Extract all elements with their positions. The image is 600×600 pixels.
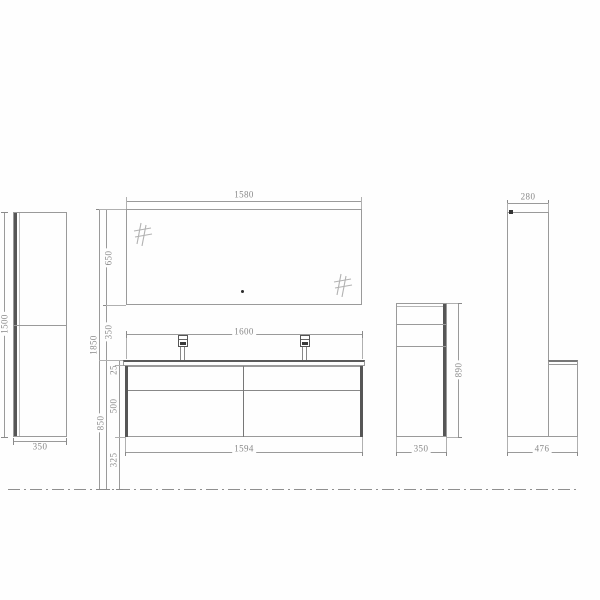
extension-line: [361, 197, 362, 209]
faucet-stem: [180, 347, 185, 360]
extension-line: [362, 338, 363, 359]
extension-line: [99, 209, 126, 210]
tick: [126, 331, 127, 338]
extension-line: [507, 437, 508, 452]
extension-line: [115, 437, 125, 438]
extension-line: [447, 303, 458, 304]
dim-mirror-gap: 350: [105, 323, 114, 342]
dim-overall-depth: 476: [533, 445, 552, 454]
faucet-stem: [302, 347, 307, 360]
dim-countertop-width: 1600: [232, 328, 256, 337]
extension-line: [115, 365, 123, 366]
dim-mirror-height: 650: [105, 249, 114, 268]
side-cabinet-drawer-line-2: [396, 346, 447, 347]
extension-line: [577, 437, 578, 452]
tall-cabinet-side-view: [507, 212, 549, 437]
vanity-left-side-panel: [125, 366, 128, 437]
dim-line-tall-cabinet-depth: [507, 203, 549, 204]
vanity-side-counter-line: [549, 364, 578, 365]
tick: [116, 489, 123, 490]
tick: [362, 331, 363, 338]
extension-line: [396, 437, 397, 452]
vanity-body: [125, 366, 363, 437]
extension-line: [125, 437, 126, 452]
tick: [96, 489, 103, 490]
extension-line: [446, 437, 447, 452]
dim-line-overall-height: [99, 209, 100, 489]
vanity-drawer-divider-horizontal: [128, 390, 360, 391]
drawing-canvas: 1500 350 1850 650 350 850 25 500 325: [0, 0, 600, 600]
tick: [1, 437, 8, 438]
dim-line-vanity-chain: [119, 360, 120, 489]
dim-vanity-body-width: 1594: [232, 445, 256, 454]
tick: [1, 212, 8, 213]
tick: [66, 438, 67, 445]
extension-line: [99, 360, 123, 361]
dim-vanity-body-height: 500: [110, 397, 119, 416]
side-cabinet-top-panel-line: [397, 306, 446, 307]
floor-centerline: [8, 489, 580, 490]
mirror-touch-sensor-dot: [241, 290, 244, 293]
dim-left-cabinet-width: 350: [31, 443, 50, 452]
vanity-drawer-divider-vertical: [243, 366, 244, 437]
mirror-sparkle-icon: [332, 271, 354, 297]
extension-line: [126, 338, 127, 359]
tall-cabinet-wall-bracket-mark: [509, 210, 513, 214]
dim-left-cabinet-height: 1500: [1, 312, 10, 336]
extension-line: [507, 203, 508, 212]
dim-mirror-width: 1580: [232, 191, 256, 200]
faucet-icon: [300, 335, 310, 347]
mirror: [126, 209, 362, 305]
dim-side-cabinet-height: 890: [455, 361, 464, 380]
mirror-sparkle-icon: [132, 220, 154, 246]
tick: [13, 438, 14, 445]
dim-overall-height: 1850: [90, 333, 99, 357]
vanity-right-side-panel: [360, 366, 363, 437]
tick: [103, 489, 110, 490]
faucet-icon: [178, 335, 188, 347]
dim-counter-height: 850: [97, 414, 106, 433]
dim-tall-cabinet-depth: 280: [519, 193, 538, 202]
vanity-side-profile: [548, 360, 578, 437]
left-cabinet-divider: [13, 325, 67, 326]
dim-side-cabinet-width: 350: [412, 445, 431, 454]
extension-line: [126, 197, 127, 209]
extension-line: [106, 305, 126, 306]
side-cabinet-drawer-line-1: [396, 324, 447, 325]
dim-floor-clearance: 325: [110, 451, 119, 470]
extension-line: [362, 437, 363, 452]
extension-line: [447, 437, 458, 438]
dim-line-mirror-width: [126, 201, 362, 202]
extension-line: [548, 203, 549, 212]
